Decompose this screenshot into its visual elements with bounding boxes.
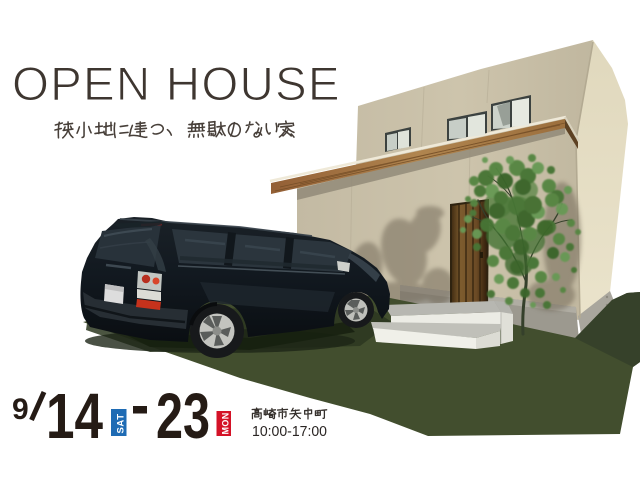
svg-text:MON: MON	[221, 412, 231, 434]
svg-text:9: 9	[12, 393, 29, 426]
svg-text:SAT: SAT	[116, 413, 127, 433]
svg-text:14: 14	[46, 380, 103, 452]
svg-text:10:00-17:00: 10:00-17:00	[252, 424, 327, 440]
svg-text:OPEN HOUSE: OPEN HOUSE	[12, 58, 341, 111]
svg-text:23: 23	[156, 380, 210, 452]
